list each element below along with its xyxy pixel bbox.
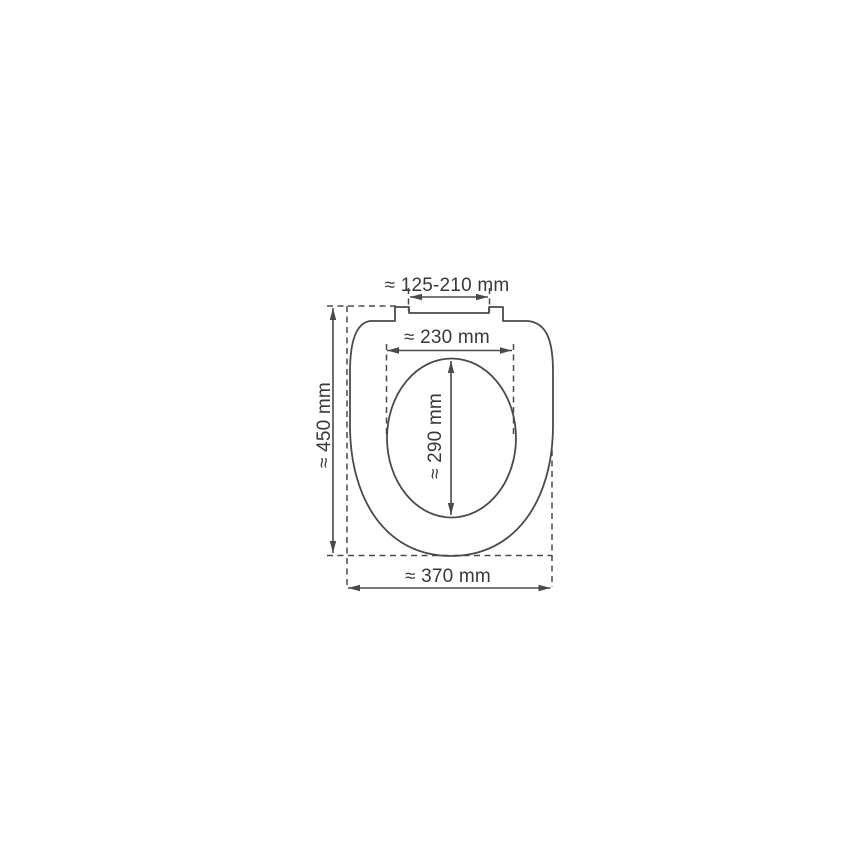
dimension-labels-group: ≈ 125-210 mm ≈ 230 mm ≈ 290 mm ≈ 450 mm … bbox=[314, 275, 509, 587]
label-inner-length: ≈ 290 mm bbox=[425, 393, 446, 479]
label-overall-length: ≈ 450 mm bbox=[314, 382, 335, 468]
diagram-canvas: ≈ 125-210 mm ≈ 230 mm ≈ 290 mm ≈ 450 mm … bbox=[0, 0, 868, 868]
label-overall-width: ≈ 370 mm bbox=[405, 566, 491, 587]
label-hinge-spacing: ≈ 125-210 mm bbox=[385, 275, 510, 296]
label-inner-width: ≈ 230 mm bbox=[404, 327, 490, 348]
toilet-seat-dimension-diagram: ≈ 125-210 mm ≈ 230 mm ≈ 290 mm ≈ 450 mm … bbox=[0, 0, 868, 868]
